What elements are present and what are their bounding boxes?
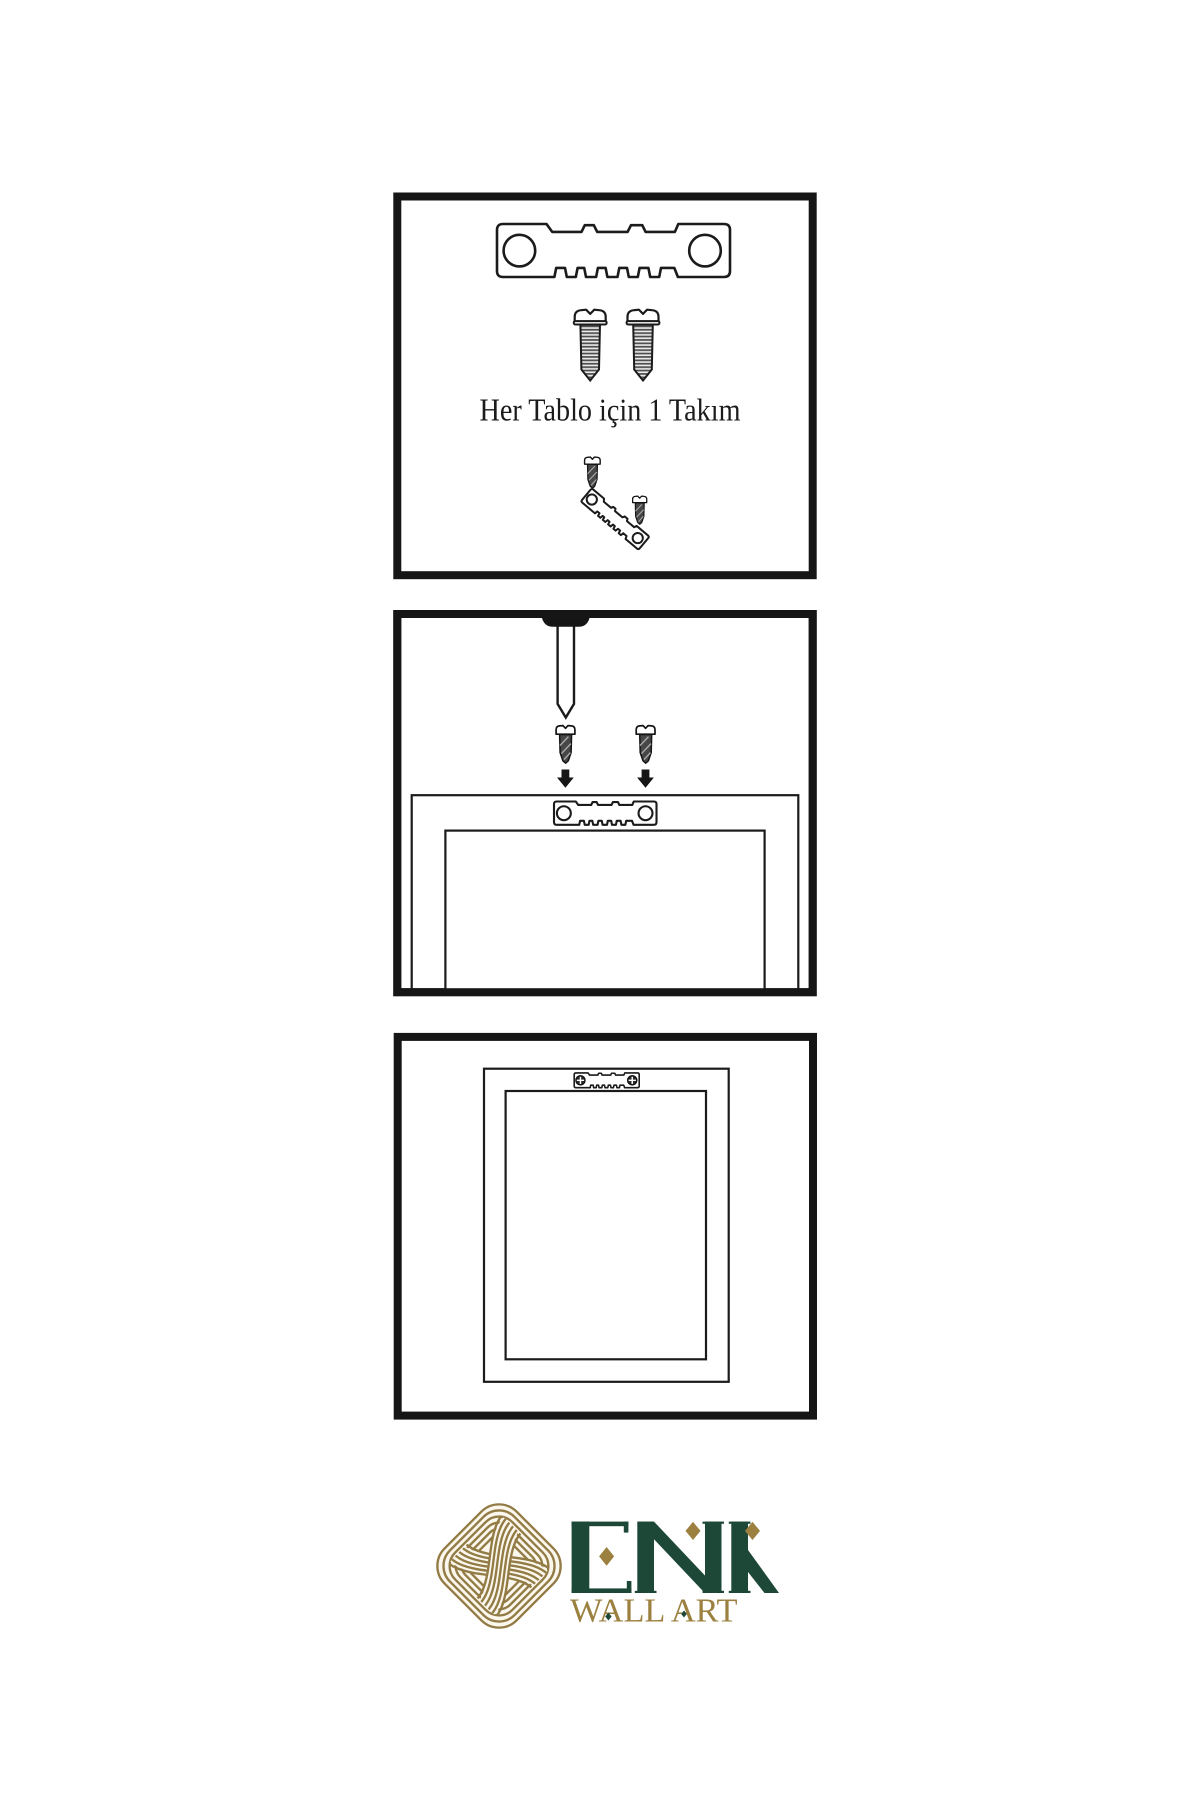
svg-text:Her Tablo için 1 Takım: Her Tablo için 1 Takım xyxy=(480,393,741,428)
svg-text:WALL ART: WALL ART xyxy=(570,1592,738,1629)
